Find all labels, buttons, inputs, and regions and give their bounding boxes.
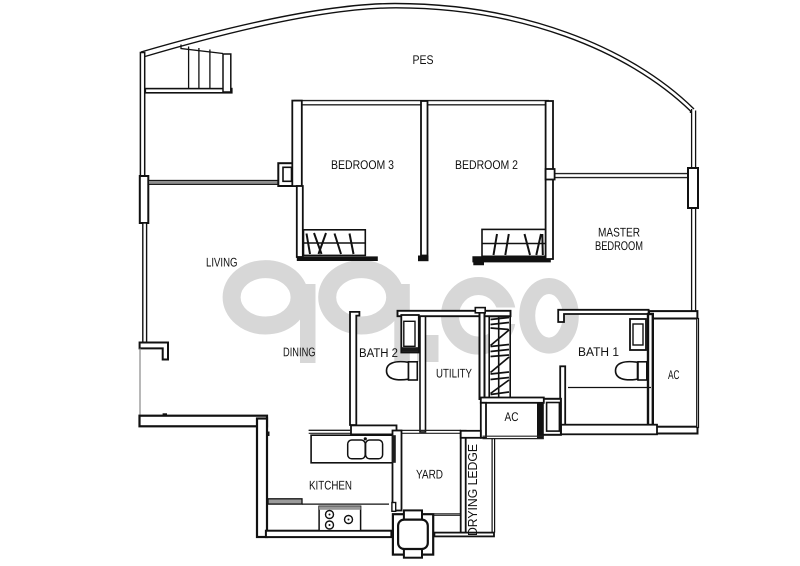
svg-text:BEDROOM 3: BEDROOM 3	[331, 158, 394, 172]
svg-text:AC: AC	[668, 368, 680, 382]
svg-text:YARD: YARD	[416, 468, 443, 482]
svg-text:DRYING LEDGE: DRYING LEDGE	[466, 444, 480, 536]
svg-text:KITCHEN: KITCHEN	[309, 479, 352, 493]
svg-text:AC: AC	[504, 410, 518, 424]
svg-text:BATH 2: BATH 2	[359, 346, 398, 360]
svg-text:PES: PES	[412, 53, 433, 67]
svg-text:BATH 1: BATH 1	[578, 345, 619, 359]
svg-text:BEDROOM: BEDROOM	[595, 239, 643, 253]
svg-text:BEDROOM 2: BEDROOM 2	[455, 158, 518, 172]
svg-text:MASTER: MASTER	[598, 225, 640, 239]
svg-text:UTILITY: UTILITY	[436, 367, 472, 381]
svg-text:LIVING: LIVING	[206, 256, 238, 270]
svg-text:DINING: DINING	[283, 345, 316, 359]
